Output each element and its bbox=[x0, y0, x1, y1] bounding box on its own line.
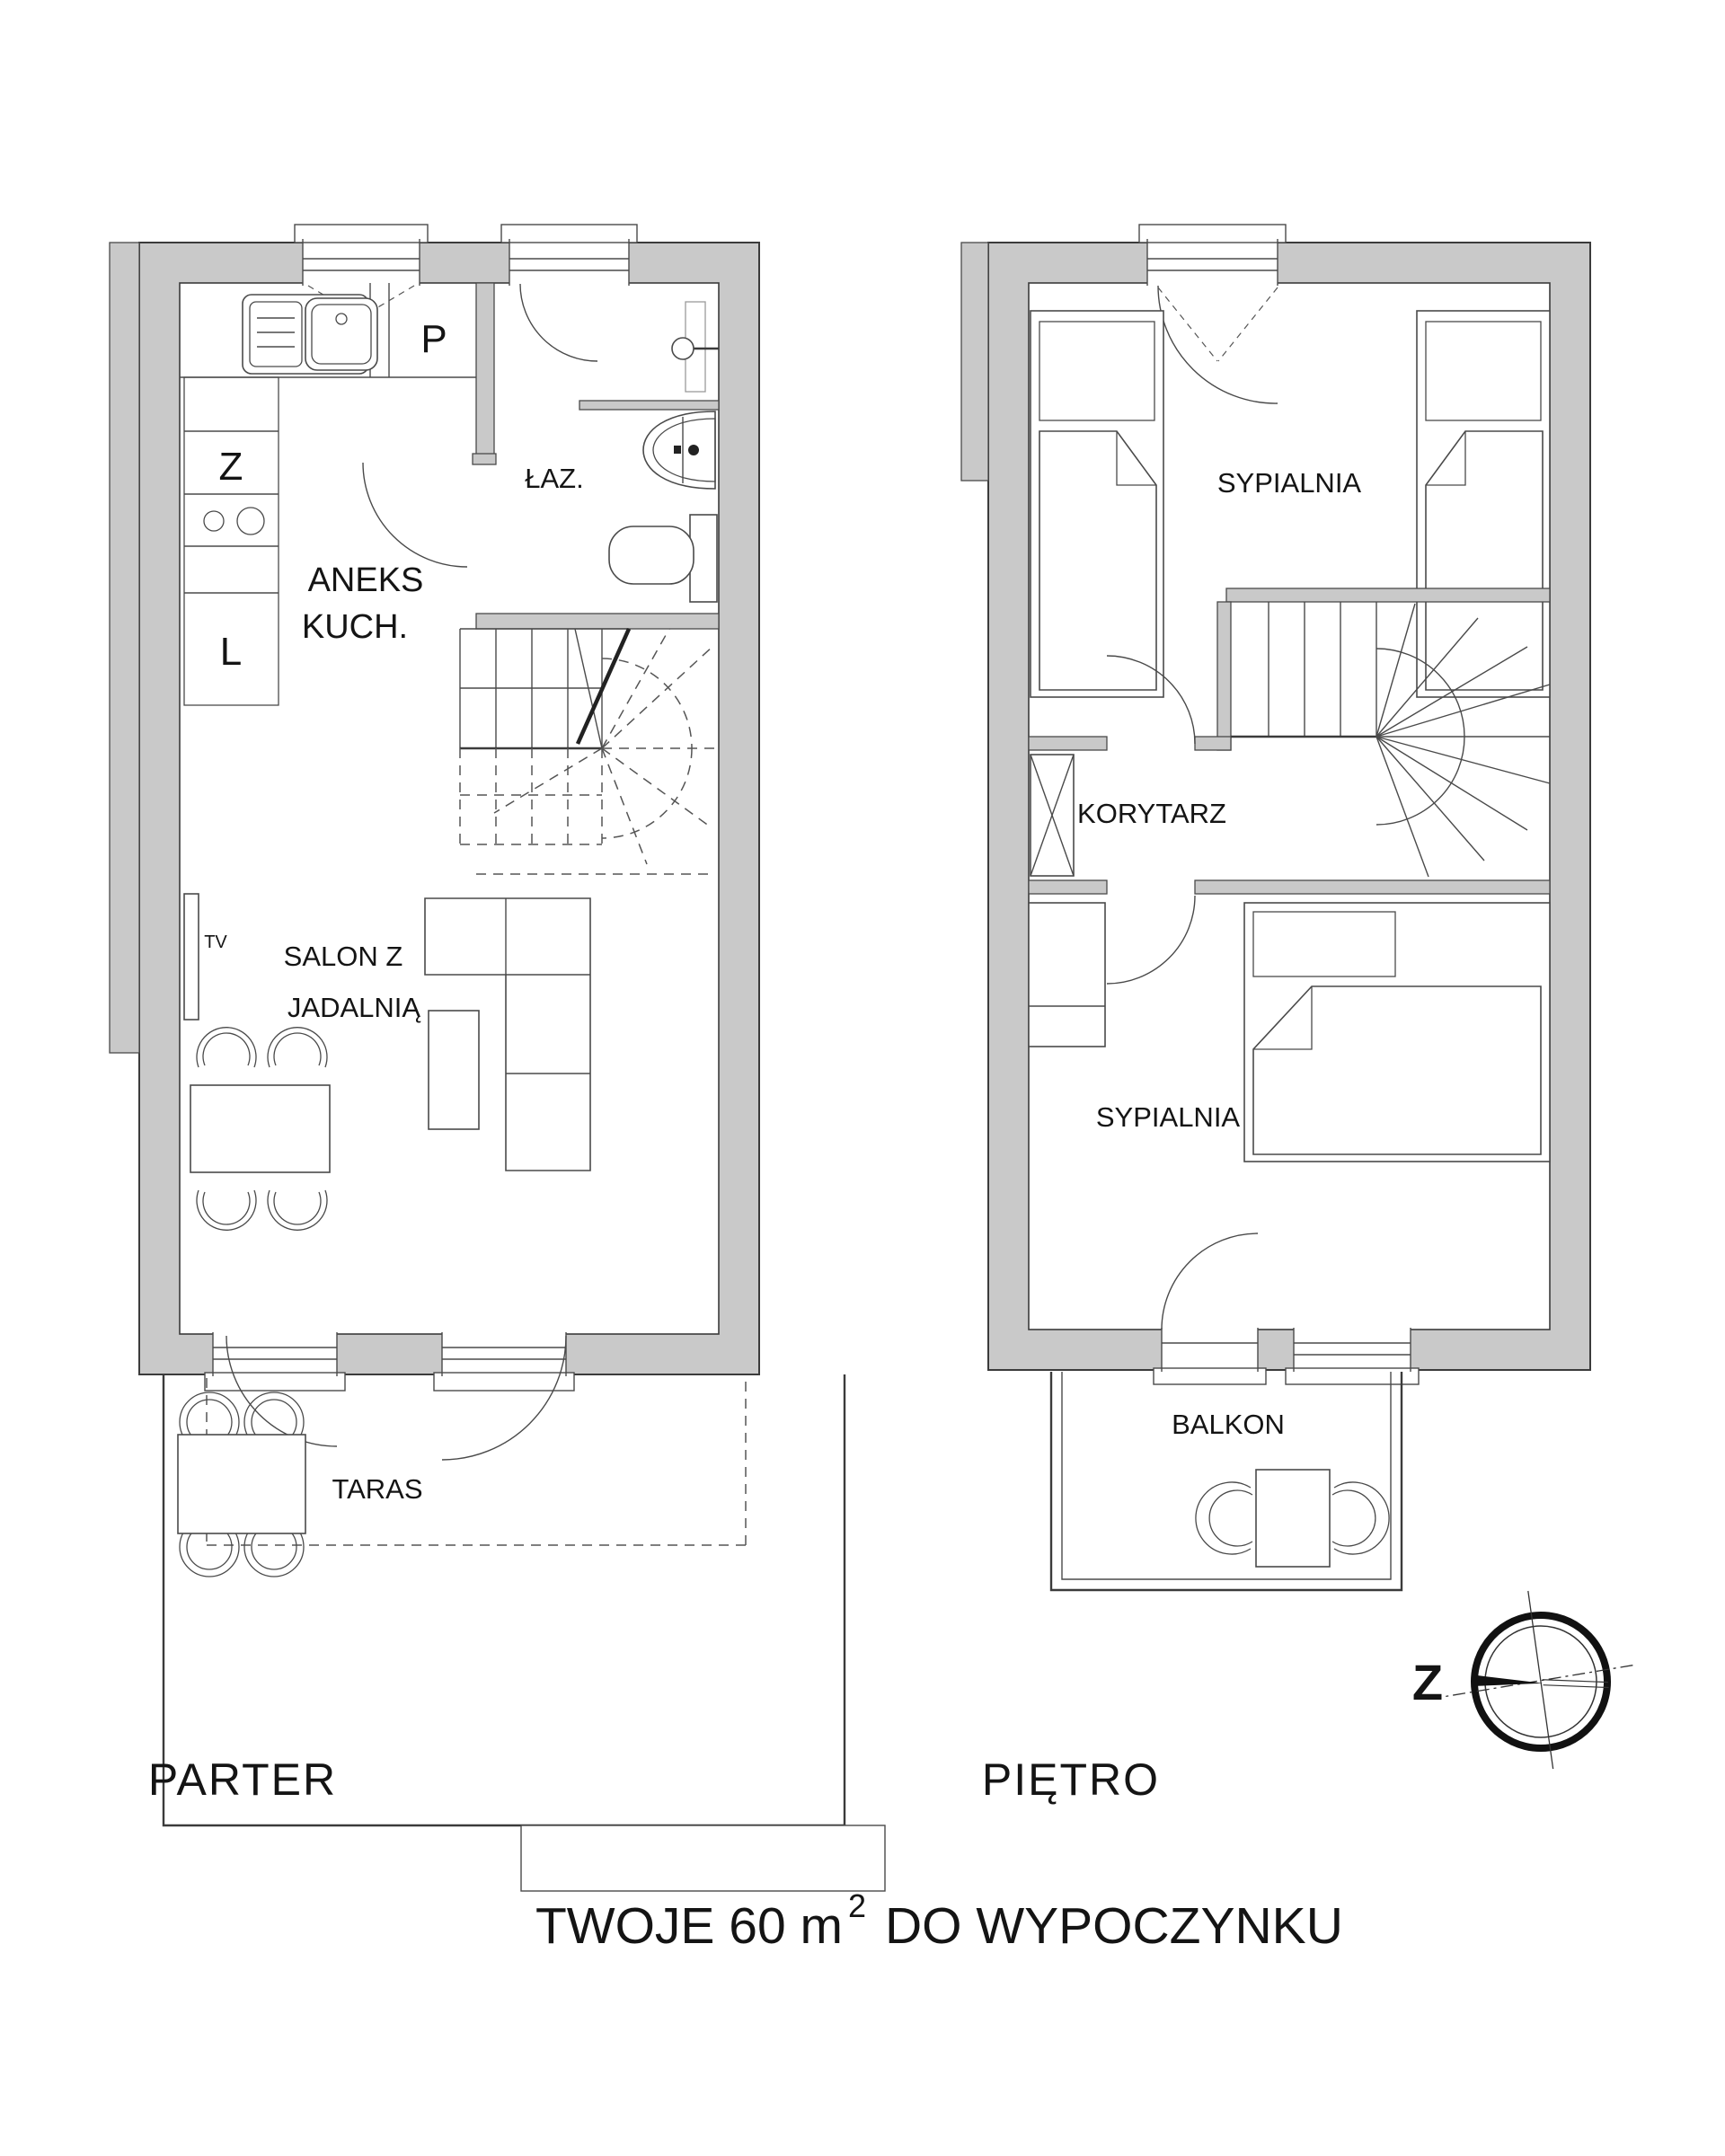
pietro-plan bbox=[961, 225, 1590, 1590]
title-superscript: 2 bbox=[848, 1887, 866, 1924]
compass-rose-icon bbox=[1416, 1577, 1650, 1785]
kitchen-sink-icon bbox=[243, 295, 377, 374]
appliance-p-label: P bbox=[420, 317, 447, 361]
terrace bbox=[164, 1374, 885, 1891]
corridor-label: KORYTARZ bbox=[1077, 798, 1226, 829]
bedroom2-label: SYPIALNIA bbox=[1096, 1101, 1241, 1133]
title-suffix: DO WYPOCZYNKU bbox=[885, 1897, 1343, 1955]
bed-single-right bbox=[1417, 311, 1550, 697]
floor-label-parter: PARTER bbox=[148, 1754, 337, 1805]
terrace-step bbox=[521, 1825, 885, 1891]
terrace-label: TARAS bbox=[332, 1473, 422, 1505]
dining-table bbox=[190, 1085, 330, 1172]
title-prefix: TWOJE 60 m bbox=[535, 1897, 843, 1955]
bed-double bbox=[1244, 903, 1550, 1162]
floor-plan-drawing: ANEKS KUCH. P Z L ŁAZ. TV SALON Z JADALN… bbox=[0, 0, 1725, 2156]
page-title: TWOJE 60 m 2 DO WYPOCZYNKU bbox=[535, 1887, 1343, 1955]
kitchen-label-line1: ANEKS bbox=[308, 561, 424, 599]
terrace-window bbox=[205, 1332, 345, 1446]
kitchen-label-line2: KUCH. bbox=[302, 608, 408, 646]
bed-single-left bbox=[1031, 311, 1163, 697]
parter-exterior-walls bbox=[110, 243, 759, 1374]
bathroom-label: ŁAZ. bbox=[525, 463, 583, 494]
compass-west-label: Z bbox=[1412, 1654, 1443, 1710]
living-label-line1: SALON Z bbox=[284, 941, 403, 972]
terrace-table bbox=[178, 1435, 305, 1533]
appliance-l-label: L bbox=[220, 630, 242, 674]
floor-label-pietro: PIĘTRO bbox=[982, 1754, 1160, 1805]
tv-label: TV bbox=[204, 932, 227, 952]
appliance-z-label: Z bbox=[219, 445, 243, 489]
bedroom2-window bbox=[1286, 1328, 1419, 1384]
corridor-closet bbox=[1031, 755, 1074, 876]
floor-plan-page: ANEKS KUCH. P Z L ŁAZ. TV SALON Z JADALN… bbox=[0, 0, 1725, 2156]
bedroom1-label: SYPIALNIA bbox=[1217, 467, 1362, 499]
living-label-line2: JADALNIĄ bbox=[287, 992, 420, 1023]
coffee-table bbox=[429, 1011, 479, 1129]
tv bbox=[184, 894, 199, 1020]
terrace-door bbox=[434, 1332, 574, 1460]
balcony-label: BALKON bbox=[1172, 1409, 1285, 1440]
wardrobe bbox=[1029, 903, 1105, 1047]
balcony bbox=[1051, 1372, 1402, 1590]
balcony-table bbox=[1256, 1470, 1330, 1567]
balcony-chair bbox=[1332, 1482, 1389, 1554]
balcony-chair bbox=[1196, 1482, 1252, 1554]
